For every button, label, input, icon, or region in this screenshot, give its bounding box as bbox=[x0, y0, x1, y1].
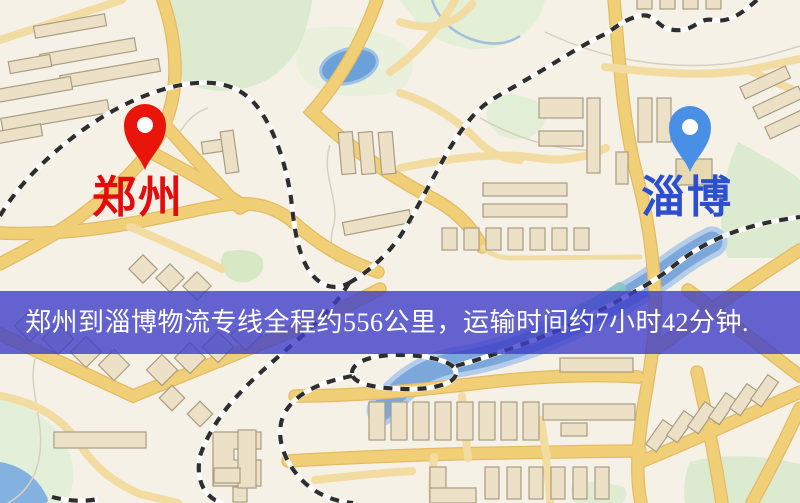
destination-city-label: 淄博 bbox=[641, 176, 733, 220]
route-info-banner: 郑州到淄博物流专线全程约556公里，运输时间约7小时42分钟. bbox=[0, 291, 800, 354]
origin-city-label: 郑州 bbox=[92, 176, 184, 220]
route-info-text: 郑州到淄博物流专线全程约556公里，运输时间约7小时42分钟. bbox=[25, 308, 749, 337]
route-map-image: 郑州 淄博 郑州到淄博物流专线全程约556公里，运输时间约7小时42分钟. bbox=[0, 0, 800, 503]
map-canvas bbox=[0, 0, 800, 503]
